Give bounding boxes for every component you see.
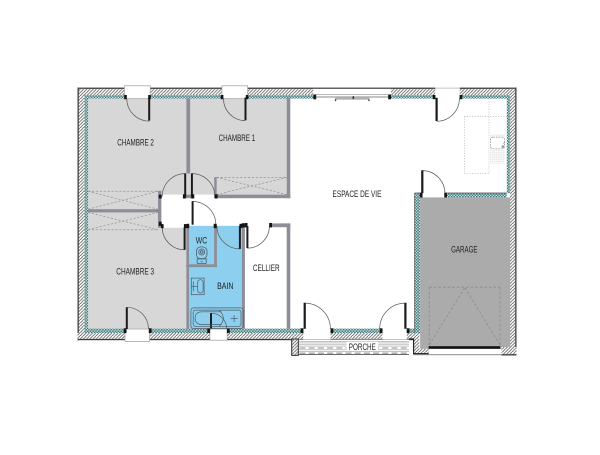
svg-text:CHAMBRE 2: CHAMBRE 2 bbox=[117, 138, 154, 148]
svg-text:CHAMBRE 3: CHAMBRE 3 bbox=[116, 266, 154, 276]
svg-text:WC: WC bbox=[196, 235, 208, 245]
svg-text:ESPACE DE VIE: ESPACE DE VIE bbox=[333, 189, 382, 199]
svg-text:CELLIER: CELLIER bbox=[253, 263, 280, 273]
svg-text:GARAGE: GARAGE bbox=[451, 245, 477, 255]
svg-text:BAIN: BAIN bbox=[217, 281, 233, 291]
svg-text:CHAMBRE 1: CHAMBRE 1 bbox=[219, 133, 256, 143]
svg-text:PORCHE: PORCHE bbox=[349, 342, 376, 352]
